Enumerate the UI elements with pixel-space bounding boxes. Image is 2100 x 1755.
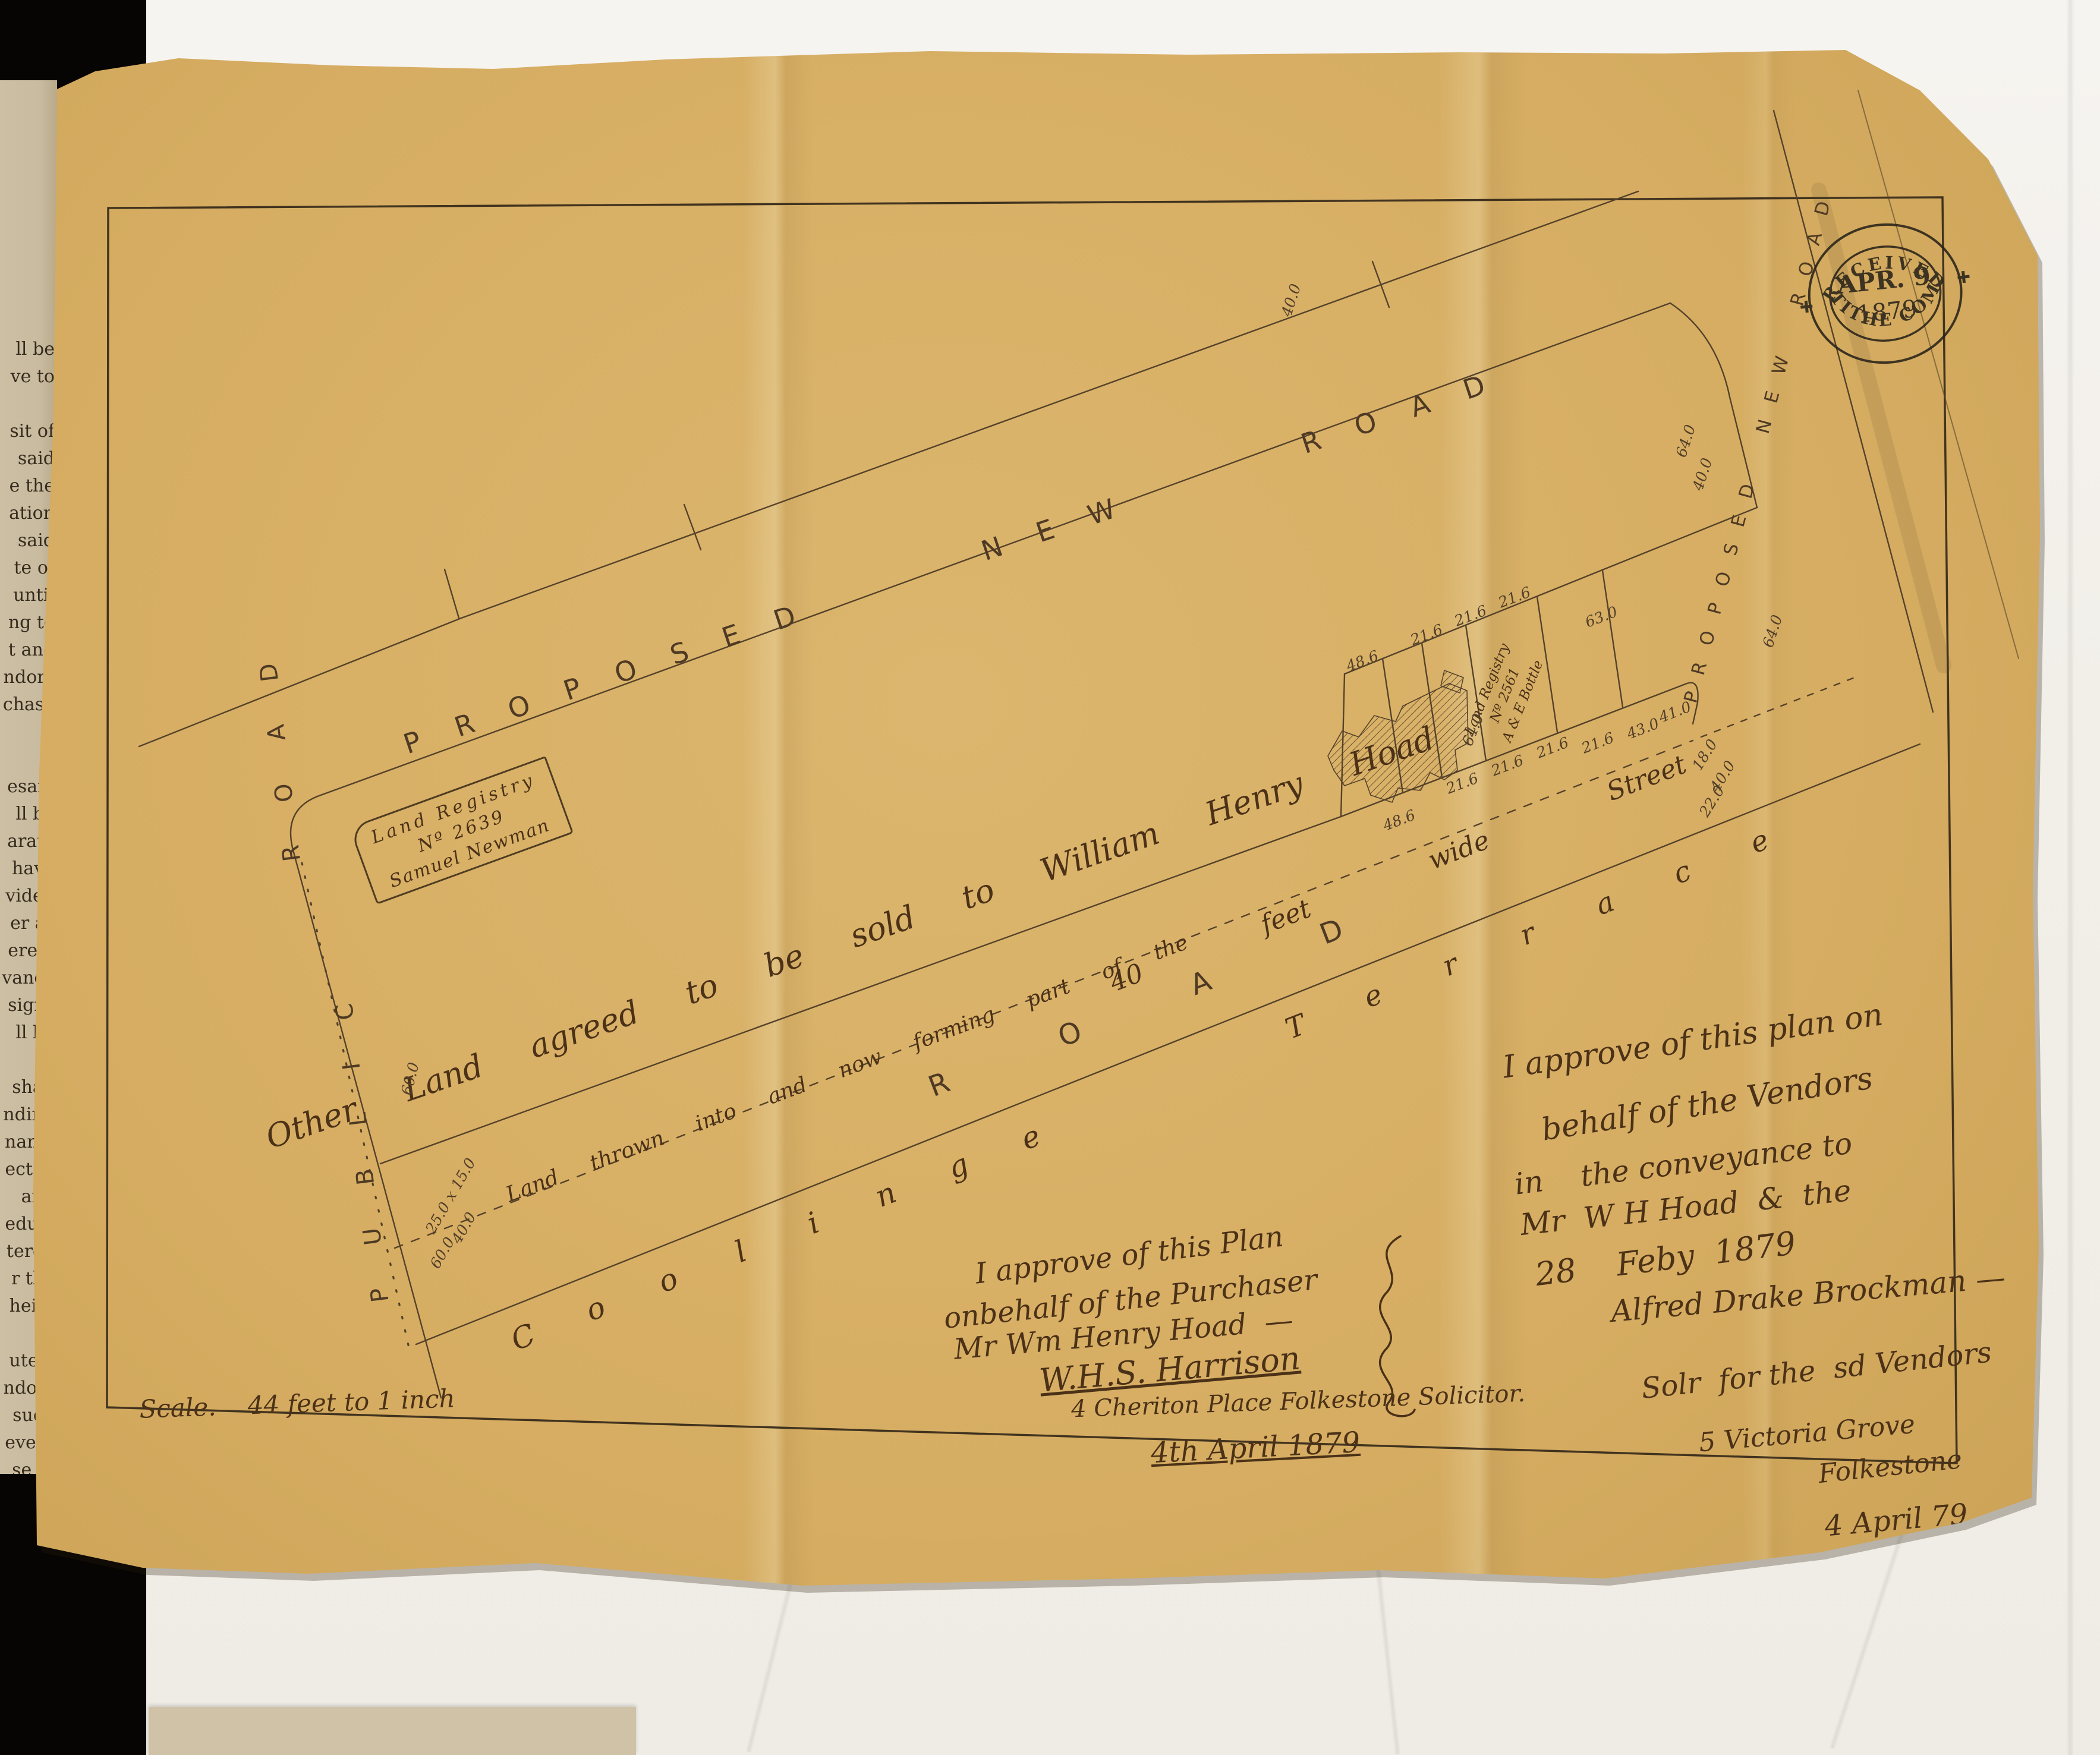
road-tick <box>445 569 459 618</box>
book-text-fragment: ve to <box>0 363 57 390</box>
top-road-upper-line <box>139 191 1638 746</box>
road-tick <box>684 505 701 550</box>
right-road-line <box>1774 111 1933 712</box>
street-dashed-line-2 <box>1701 678 1855 737</box>
plan-sheet: P R O P O S E D N E W R O A DP R O P O S… <box>0 0 2100 1755</box>
lower-sheet-edge <box>149 1707 636 1755</box>
book-text-fragment: ll be <box>0 336 57 363</box>
paper-crease <box>2066 0 2074 1755</box>
book-text-fragment <box>0 390 57 418</box>
plot-division <box>1602 571 1623 707</box>
book-text-fragment: ation <box>0 500 57 527</box>
received-date-stamp: RECEIVED TITHE COM APR. 9 1879 <box>1789 206 1983 385</box>
book-text-fragment: e the <box>0 472 57 500</box>
road-tick <box>1372 261 1389 307</box>
archival-plan-photograph: ll beve to sit ofsaide theationsaidte of… <box>0 0 2100 1755</box>
book-text-fragment: said <box>0 445 57 472</box>
book-text-fragment: sit of <box>0 418 57 445</box>
